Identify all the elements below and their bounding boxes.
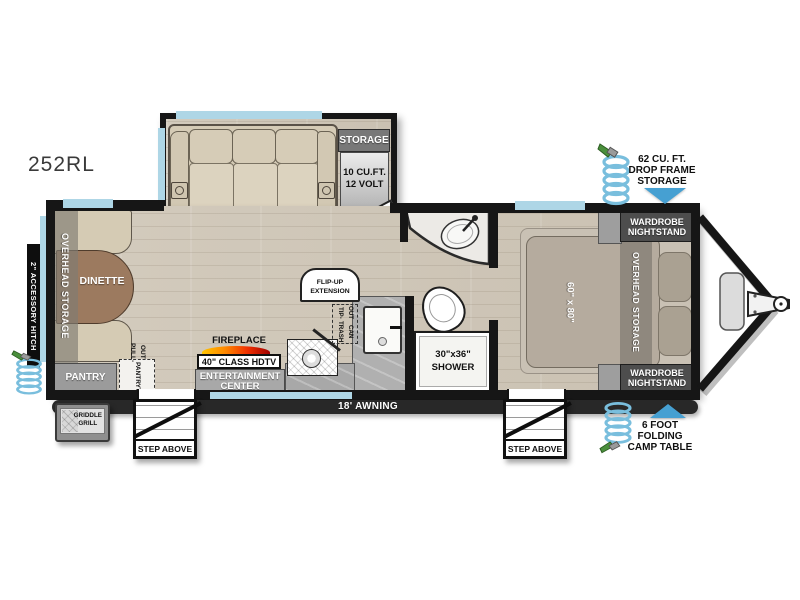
- propane-cover: [720, 273, 744, 330]
- arrow-up-icon: [650, 404, 686, 418]
- tip-out-trash-can: TIP-OUT TRASH CAN: [332, 304, 358, 344]
- wardrobe-top-line2: NIGHTSTAND: [628, 227, 686, 237]
- sofa: [168, 124, 338, 212]
- slideout-top-window: [176, 111, 322, 119]
- storage-cabinet: STORAGE: [338, 129, 390, 152]
- pillow: [658, 252, 692, 302]
- fridge-label-line1: 10 CU.FT.: [341, 167, 388, 179]
- flipup-line2: EXTENSION: [302, 288, 358, 297]
- griddle-line2: GRILL: [74, 420, 102, 428]
- sofa-back-cushion: [275, 129, 319, 164]
- hdtv: 40" CLASS HDTV: [197, 354, 281, 369]
- cupholder: [318, 182, 335, 199]
- fridge-label-line2: 12 VOLT: [341, 179, 388, 191]
- cupholder: [171, 182, 188, 199]
- rear-window: [40, 216, 46, 362]
- wardrobe-nightstand-bottom: WARDROBE NIGHTSTAND: [620, 364, 694, 392]
- bed-overhead-storage: OVERHEAD STORAGE: [620, 238, 652, 366]
- bath-wall: [489, 206, 498, 268]
- flipup-line1: FLIP-UP: [302, 279, 358, 288]
- tongue-hitch: [692, 195, 800, 410]
- kitchen-sink: [363, 306, 402, 354]
- arrow-down-icon: [644, 188, 686, 204]
- fireplace-label: FIREPLACE: [203, 334, 275, 346]
- trays-line1: PULL-OUT: [127, 343, 147, 362]
- pillow: [658, 306, 692, 356]
- sofa-seat-cushion: [277, 163, 319, 211]
- wardrobe-bottom-line2: NIGHTSTAND: [628, 378, 686, 388]
- range-cooktop: [287, 339, 338, 376]
- floorplan-252rl: 252RL STORAGE 10 CU.FT. 12 VOLT DINETTE: [0, 0, 800, 600]
- wardrobe-top-line1: WARDROBE: [628, 217, 686, 227]
- trays-line2: PANTRY: [132, 362, 142, 388]
- trash-line1: TIP-OUT: [335, 305, 355, 320]
- griddle-line1: GRIDDLE: [74, 412, 102, 420]
- sofa-seat-cushion: [233, 163, 278, 211]
- refrigerator: 10 CU.FT. 12 VOLT: [340, 152, 389, 208]
- slideout-left-window: [158, 128, 165, 200]
- sofa-back-cushion: [232, 129, 276, 164]
- sink-drain: [378, 337, 387, 346]
- shower: 30"x36" SHOWER: [414, 331, 492, 392]
- awning-label: 18' AWNING: [288, 401, 448, 412]
- bed-size-label: 60" x 80": [562, 262, 578, 342]
- sofa-seat-cushion: [189, 163, 234, 211]
- bath-wall: [405, 296, 414, 392]
- dinette-overhead-storage: OVERHEAD STORAGE: [52, 208, 78, 363]
- trash-line2: TRASH CAN: [335, 320, 355, 343]
- water-hose-icon: [10, 348, 48, 398]
- window: [63, 199, 113, 208]
- entry-steps-left: STEP ABOVE: [133, 399, 197, 459]
- wardrobe-bottom-line1: WARDROBE: [628, 368, 686, 378]
- dropframe-line1: 62 CU. FT.: [622, 154, 702, 165]
- window: [515, 201, 585, 210]
- pull-out-pantry-trays: PULL-OUT PANTRY TRAYS: [119, 359, 155, 393]
- sofa-back-cushion: [189, 129, 233, 164]
- wardrobe-nightstand-top: WARDROBE NIGHTSTAND: [620, 212, 694, 242]
- sink-faucet-icon: [390, 326, 402, 329]
- griddle-grill: GRIDDLE GRILL: [55, 403, 110, 442]
- shower-size: 30"x36": [432, 349, 475, 361]
- ent-line1: ENTERTAINMENT: [200, 372, 281, 382]
- entry-steps-right: STEP ABOVE: [503, 399, 567, 459]
- dropframe-line3: STORAGE: [622, 176, 702, 187]
- pantry: PANTRY: [54, 363, 117, 392]
- storage-label: STORAGE: [339, 135, 388, 146]
- burner-icon: [302, 349, 321, 368]
- shower-label: SHOWER: [432, 362, 475, 374]
- drop-frame-storage-callout: 62 CU. FT. DROP FRAME STORAGE: [622, 154, 702, 188]
- step-label: STEP ABOVE: [136, 439, 194, 456]
- bath-vanity: [400, 204, 495, 270]
- water-hose-icon: [598, 398, 638, 456]
- dropframe-line2: DROP FRAME: [622, 165, 702, 176]
- bedroom-cabinet: [598, 212, 622, 244]
- window: [210, 392, 352, 399]
- model-label: 252RL: [28, 153, 95, 177]
- bath-wall: [489, 320, 498, 392]
- step-label: STEP ABOVE: [506, 439, 564, 456]
- flip-up-extension: FLIP-UP EXTENSION: [300, 268, 360, 302]
